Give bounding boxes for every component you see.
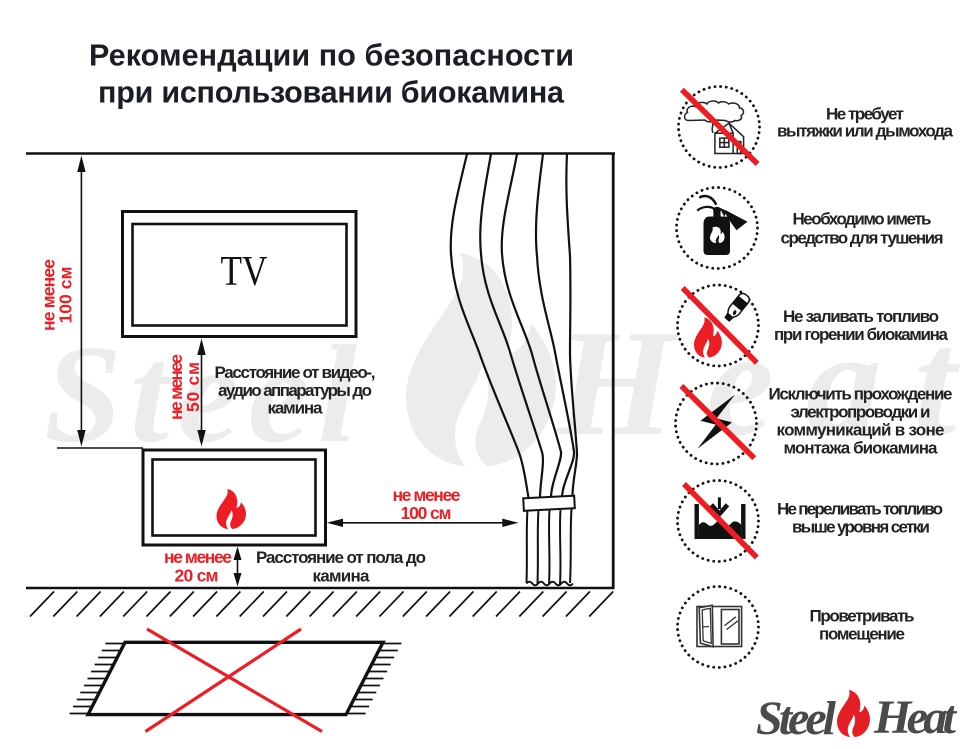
svg-text:50 см: 50 см: [183, 362, 203, 412]
svg-text:электропроводки и: электропроводки и: [791, 403, 931, 422]
svg-text:помещение: помещение: [819, 625, 905, 644]
svg-text:аудио аппаратуры до: аудио аппаратуры до: [218, 381, 372, 400]
svg-text:Не переливать топливо: Не переливать топливо: [777, 500, 943, 519]
svg-text:100 см: 100 см: [56, 267, 76, 324]
svg-text:не менее: не менее: [393, 485, 461, 505]
svg-text:Расстояние от видео-,: Расстояние от видео-,: [215, 363, 376, 382]
svg-text:выше уровня сетки: выше уровня сетки: [792, 518, 930, 537]
svg-text:вытяжки или дымохода: вытяжки или дымохода: [777, 122, 954, 141]
svg-text:Исключить прохождение: Исключить прохождение: [769, 385, 953, 404]
svg-text:при горении биокамина: при горении биокамина: [774, 325, 949, 344]
svg-text:Рекомендации по безопасности: Рекомендации по безопасности: [89, 39, 574, 73]
svg-text:коммуникаций в зоне: коммуникаций в зоне: [777, 421, 945, 440]
svg-text:камина: камина: [313, 567, 371, 586]
svg-text:камина: камина: [268, 399, 324, 418]
svg-text:100 см: 100 см: [401, 503, 452, 523]
svg-text:Steel: Steel: [756, 692, 837, 745]
svg-text:20 см: 20 см: [175, 566, 219, 586]
svg-text:не менее: не менее: [164, 547, 232, 567]
svg-text:средство для тушения: средство для тушения: [781, 229, 944, 248]
svg-text:TV: TV: [221, 249, 268, 295]
svg-text:Heat: Heat: [873, 691, 958, 744]
svg-text:Не заливать топливо: Не заливать топливо: [783, 307, 939, 326]
svg-text:Проветривать: Проветривать: [810, 607, 915, 626]
svg-text:Необходимо иметь: Необходимо иметь: [793, 210, 932, 229]
svg-text:монтажа биокамина: монтажа биокамина: [784, 439, 939, 458]
svg-text:при использовании биокамина: при использовании биокамина: [98, 76, 565, 110]
svg-text:Расстояние от пола до: Расстояние от пола до: [256, 548, 426, 567]
